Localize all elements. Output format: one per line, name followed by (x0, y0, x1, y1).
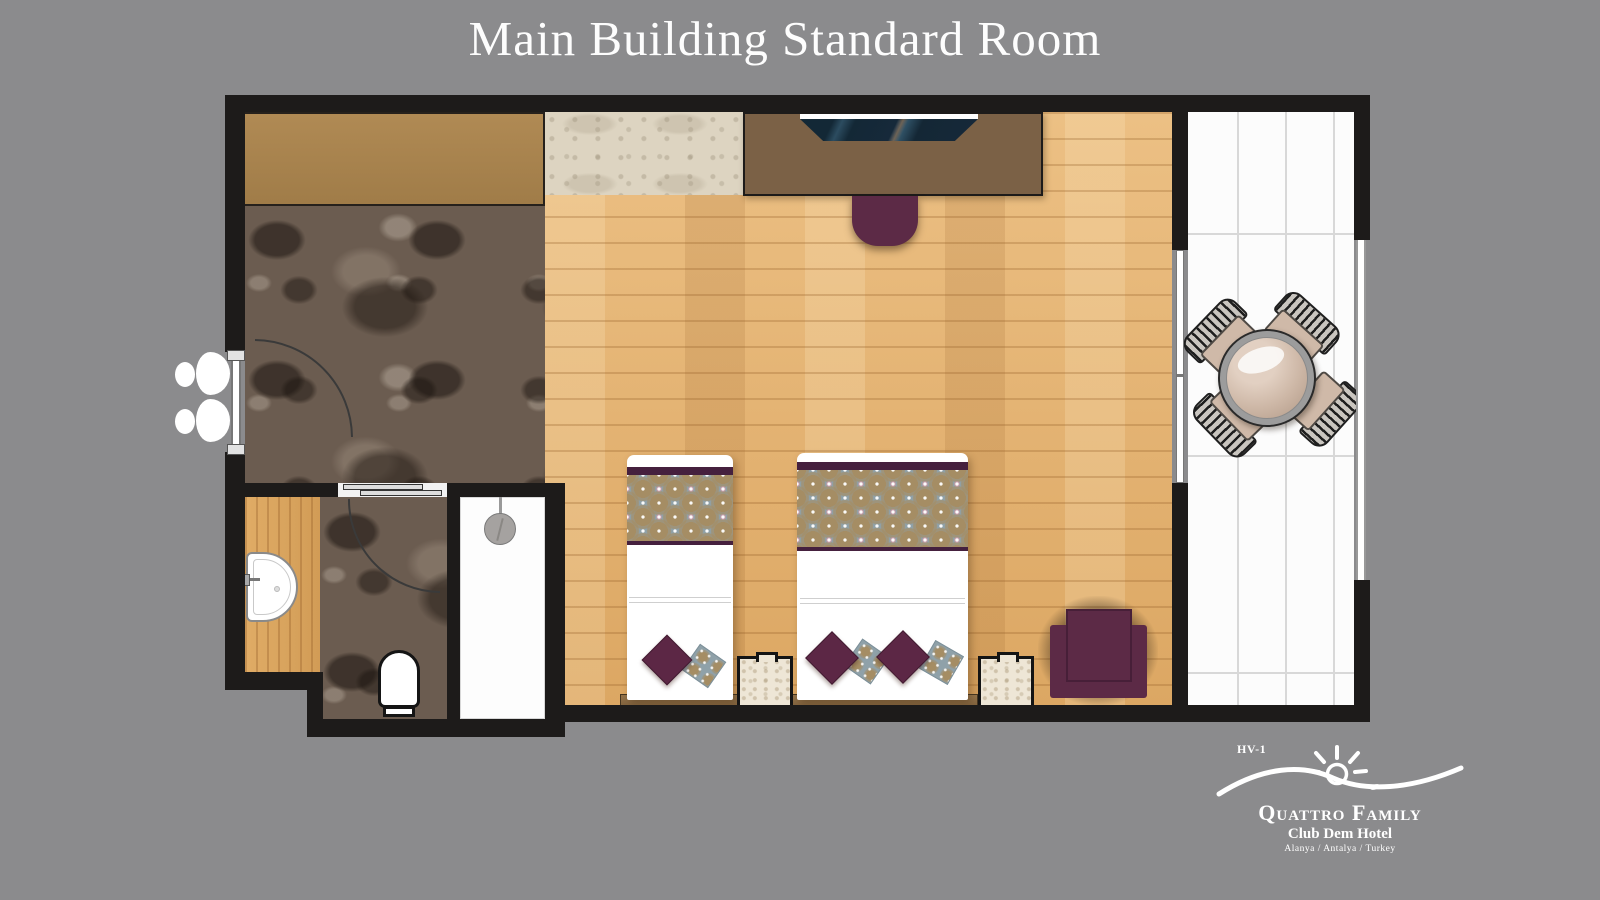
page-title: Main Building Standard Room (385, 10, 1185, 67)
wall-shower-divider (447, 497, 460, 719)
sliding-door (1176, 250, 1184, 483)
sheet-crease (629, 597, 731, 598)
door-jamb (227, 444, 245, 455)
tv (800, 119, 978, 141)
shower-head-line (496, 518, 504, 541)
balcony-table-top (1226, 337, 1308, 419)
entry-door-frame (231, 358, 241, 445)
wall-bathroom-left (245, 483, 338, 497)
travertine-rug (545, 112, 743, 195)
wall-balcony-lower (1172, 483, 1188, 705)
slipper-heel-icon (175, 362, 195, 387)
logo-brand: Quattro Family (1215, 800, 1465, 826)
pillow-patterned (682, 644, 727, 689)
single-bed (627, 455, 733, 700)
door-jamb (227, 350, 245, 361)
wave-sun-icon (1215, 740, 1465, 804)
pillow-patterned (919, 640, 964, 685)
sliding-door-divider (1176, 374, 1184, 377)
sheet-crease (629, 602, 731, 603)
faucet-spout (250, 578, 260, 581)
wall-left-lower (225, 452, 245, 690)
tile-grid-line (1188, 455, 1354, 457)
pillow-purple (876, 630, 930, 684)
logo-location: Alanya / Antalya / Turkey (1215, 844, 1465, 854)
bed-runner (797, 466, 968, 551)
balcony-railing (1356, 240, 1366, 580)
bed-runner (627, 471, 733, 545)
nightstand-handle (756, 652, 778, 662)
sheet-crease (800, 598, 965, 599)
wardrobe (243, 112, 545, 206)
tile-grid-line (1188, 672, 1354, 674)
wall-bathroom-bedroom (545, 483, 565, 737)
tv-stand-strip (800, 114, 978, 119)
wall-bathroom-bottom (307, 719, 563, 737)
desk-chair (852, 196, 918, 246)
tile-grid-line (1188, 233, 1354, 235)
slipper-icon (196, 399, 230, 442)
toilet-bowl (378, 650, 420, 708)
logo-hotel: Club Dem Hotel (1215, 826, 1465, 843)
wall-right-upper (1354, 95, 1370, 240)
sink-basin (253, 559, 291, 615)
entry-hall-floor (245, 205, 545, 483)
nightstand-handle (997, 652, 1019, 662)
slipper-heel-icon (175, 409, 195, 434)
floor-plan-canvas: Main Building Standard Room (0, 0, 1600, 900)
double-bed (797, 453, 968, 700)
toilet-tank (383, 706, 415, 717)
wall-bottom (545, 705, 1370, 722)
wall-bathroom-right (447, 483, 545, 497)
balcony-table (1218, 329, 1316, 427)
wall-right-lower (1354, 580, 1370, 722)
wall-top (225, 95, 1370, 112)
nightstand-left (737, 656, 793, 712)
hotel-logo: HV-1 Quattro Family Club Dem Hotel Alany… (1215, 740, 1465, 860)
shower-head (484, 513, 516, 545)
pillow-purple (805, 631, 859, 685)
sheet-crease (800, 603, 965, 604)
armchair-seat (1066, 609, 1132, 682)
slipper-icon (196, 352, 230, 395)
wall-balcony-upper (1172, 112, 1188, 250)
nightstand-right (978, 656, 1034, 712)
pillow-purple (642, 635, 693, 686)
table-highlight (1234, 341, 1287, 379)
wall-left-upper (225, 95, 245, 352)
sink-drain (274, 586, 280, 592)
bathroom-door-panel (360, 490, 442, 496)
